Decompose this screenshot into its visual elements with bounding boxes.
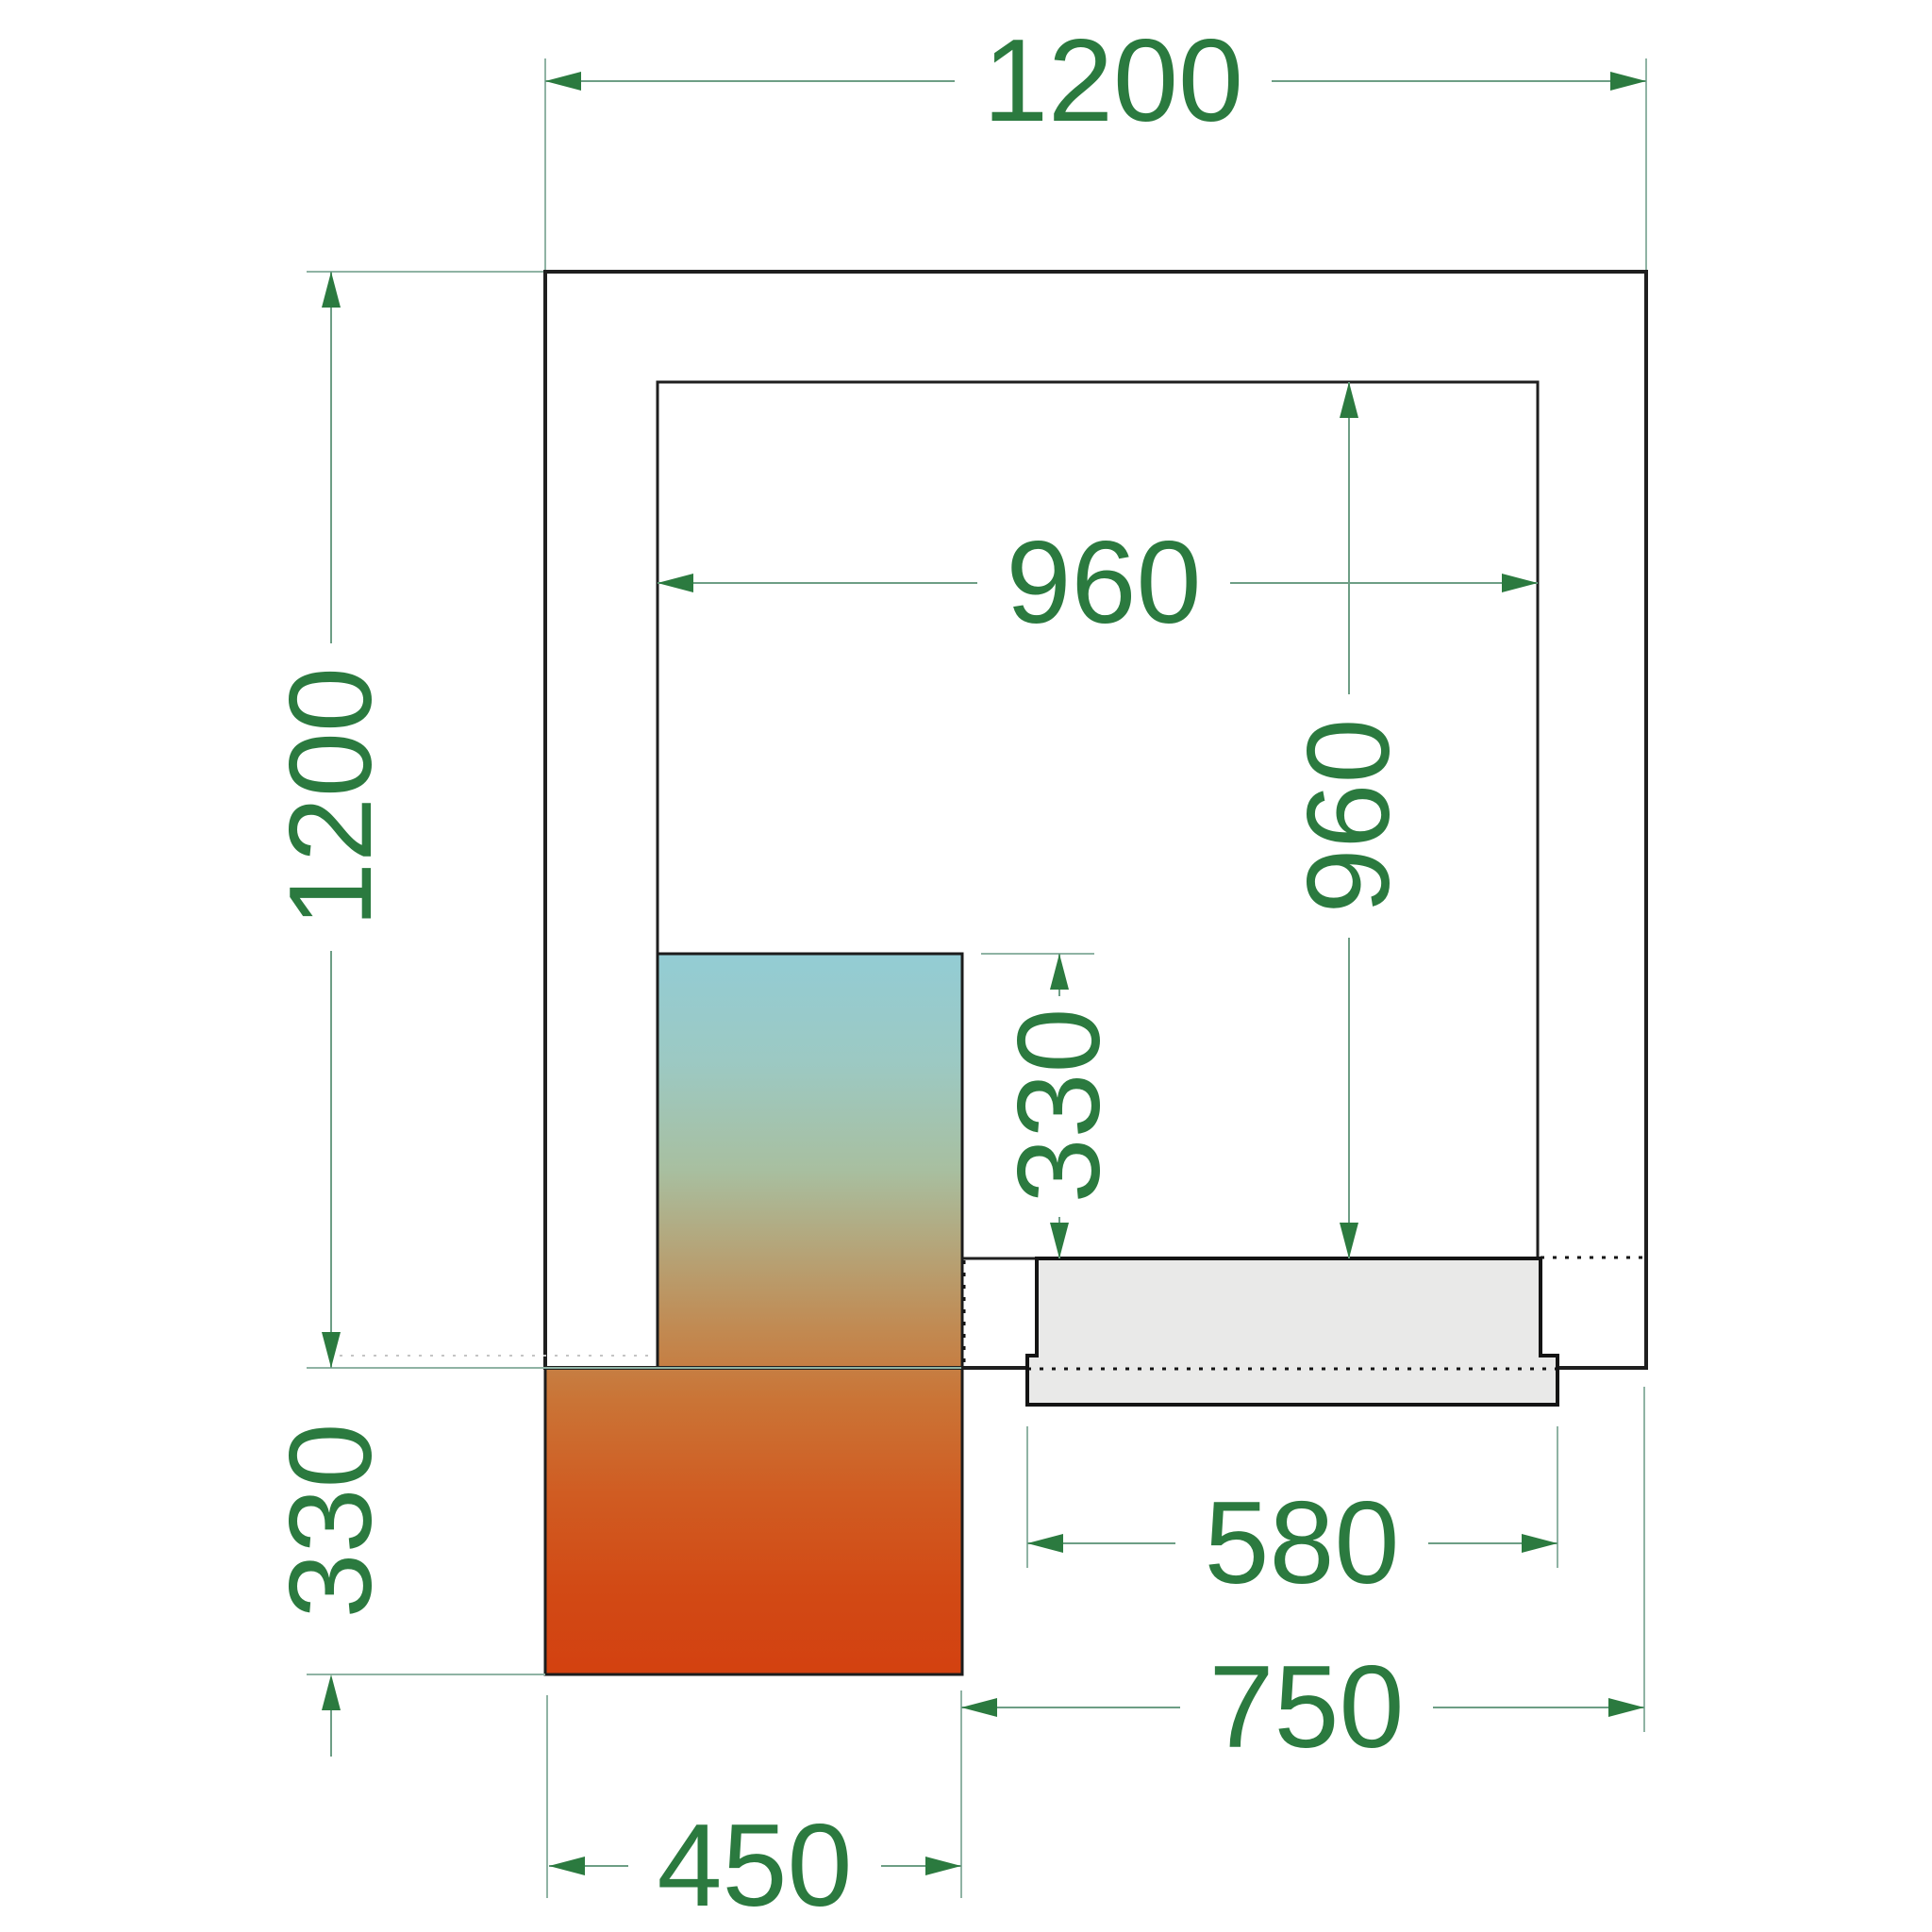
dim-unit-depth-inside-label: 330 <box>994 1008 1124 1204</box>
arrow-right-icon <box>1610 72 1646 91</box>
dim-unit-width-label: 450 <box>658 1801 853 1931</box>
arrow-right-icon <box>925 1857 961 1875</box>
arrow-right-icon <box>1522 1534 1557 1553</box>
dim-outer-width-label: 1200 <box>983 16 1243 146</box>
dim-door-span-label: 750 <box>1209 1642 1405 1773</box>
arrow-up-icon <box>322 272 341 308</box>
arrow-down-icon <box>322 1332 341 1368</box>
dim-door-span: 750 <box>961 1642 1644 1773</box>
dim-unit-width: 450 <box>549 1801 961 1931</box>
dim-outer-depth: 1200 <box>266 272 396 1368</box>
dim-outer-width: 1200 <box>545 16 1646 146</box>
dim-outer-depth-label: 1200 <box>266 667 396 927</box>
dim-unit-depth-outside: 330 <box>266 1424 396 1757</box>
arrow-left-icon <box>961 1698 997 1717</box>
floor-plan-drawing: 1200 1200 960 960 330 330 <box>0 0 1932 1932</box>
arrow-left-icon <box>1027 1534 1063 1553</box>
arrow-left-icon <box>549 1857 585 1875</box>
arrow-right-icon <box>1608 1698 1644 1717</box>
dim-inner-depth-label: 960 <box>1284 719 1414 914</box>
door-panel <box>1027 1258 1557 1405</box>
dim-door-width-label: 580 <box>1205 1478 1400 1608</box>
dim-door-width: 580 <box>1027 1478 1557 1608</box>
dim-inner-width-label: 960 <box>1007 518 1202 648</box>
arrow-left-icon <box>545 72 581 91</box>
dim-unit-depth-outside-label: 330 <box>266 1424 396 1619</box>
floor-plan-page: 1200 1200 960 960 330 330 <box>0 0 1932 1932</box>
arrow-up-icon <box>322 1674 341 1710</box>
